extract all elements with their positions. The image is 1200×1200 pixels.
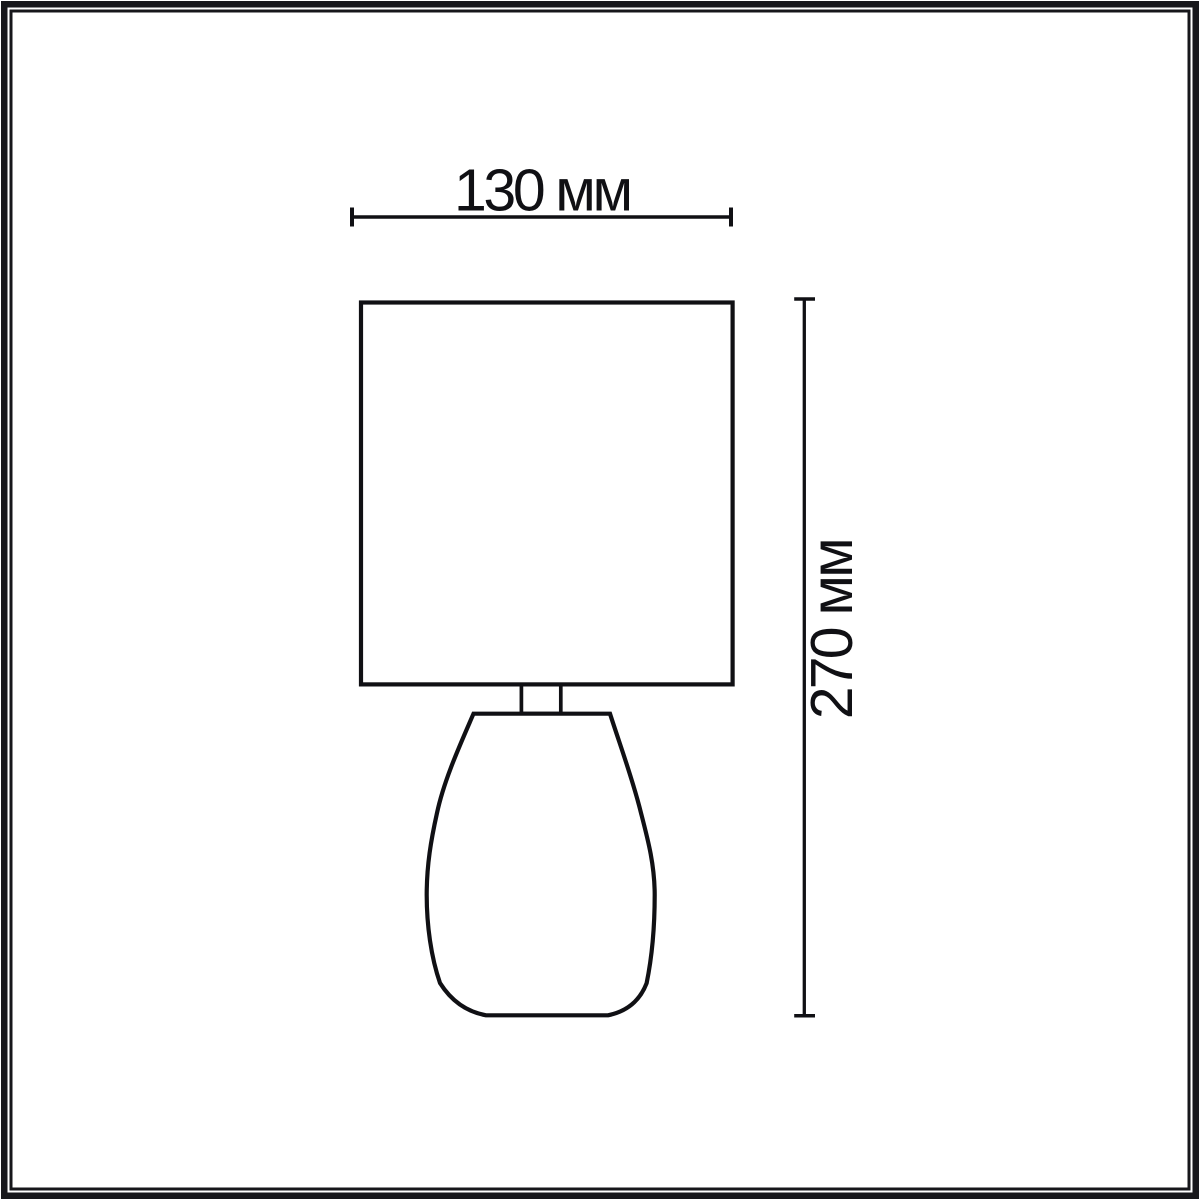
svg-text:270 мм: 270 мм bbox=[799, 537, 865, 719]
svg-text:130 мм: 130 мм bbox=[454, 158, 633, 224]
